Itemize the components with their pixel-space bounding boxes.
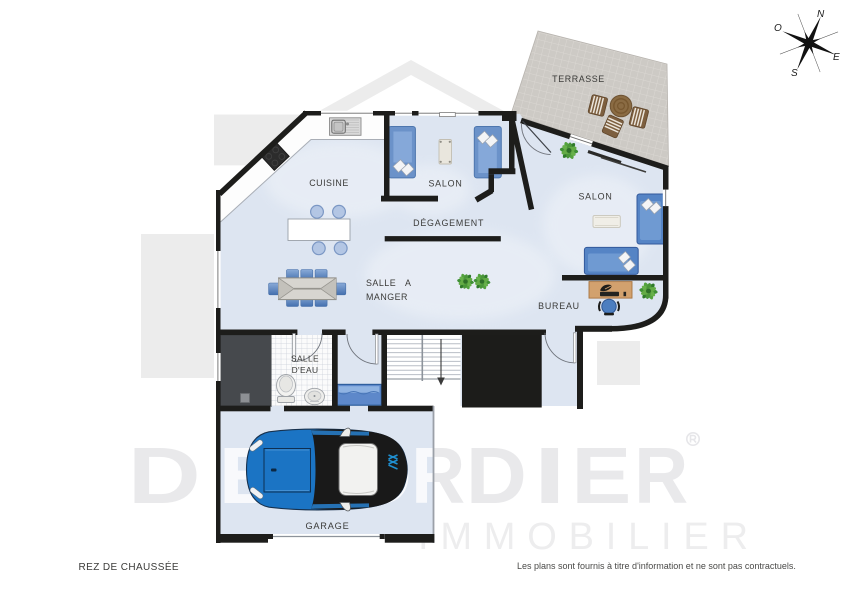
svg-text:TERRASSE: TERRASSE (552, 74, 605, 84)
svg-text:SALON: SALON (578, 192, 612, 202)
svg-text:SALON: SALON (428, 179, 462, 189)
svg-text:S: S (791, 68, 798, 79)
svg-text:O: O (774, 23, 782, 34)
svg-text:MANGER: MANGER (366, 292, 408, 302)
svg-text:CUISINE: CUISINE (309, 178, 349, 188)
svg-text:N: N (817, 9, 825, 20)
svg-text:SALLE A: SALLE A (366, 278, 411, 288)
svg-text:D'EAU: D'EAU (292, 365, 319, 375)
svg-text:SALLE: SALLE (291, 354, 319, 364)
svg-text:E: E (833, 52, 840, 63)
svg-text:BUREAU: BUREAU (538, 301, 580, 311)
svg-text:DÉGAGEMENT: DÉGAGEMENT (413, 218, 484, 228)
svg-text:REZ DE CHAUSSÉE: REZ DE CHAUSSÉE (79, 560, 179, 573)
svg-text:IMMOBILIER: IMMOBILIER (418, 516, 760, 558)
svg-text:Les plans sont fournis à titre: Les plans sont fournis à titre d'informa… (517, 561, 796, 571)
svg-text:GARAGE: GARAGE (305, 521, 349, 531)
